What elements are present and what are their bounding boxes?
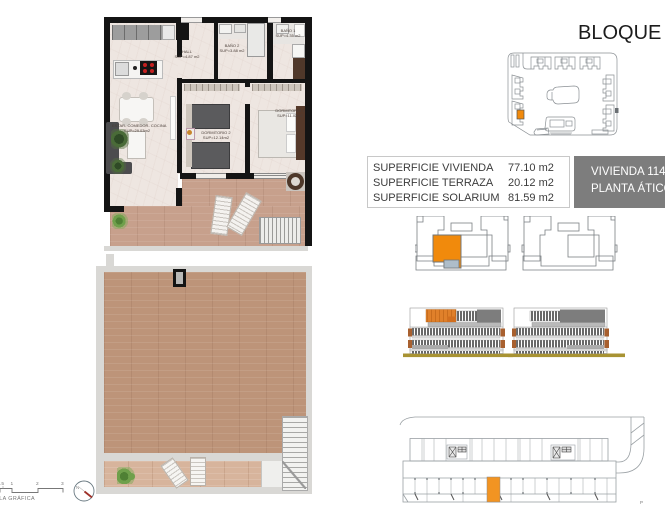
svg-text:2: 2 xyxy=(36,481,39,487)
svg-text:ESCALA GRÁFICA: ESCALA GRÁFICA xyxy=(0,495,35,502)
svg-text:N: N xyxy=(76,485,79,490)
svg-text:.5: .5 xyxy=(0,481,4,487)
svg-text:3: 3 xyxy=(61,481,64,487)
svg-text:1: 1 xyxy=(11,481,14,487)
svg-text:P: P xyxy=(640,500,643,505)
